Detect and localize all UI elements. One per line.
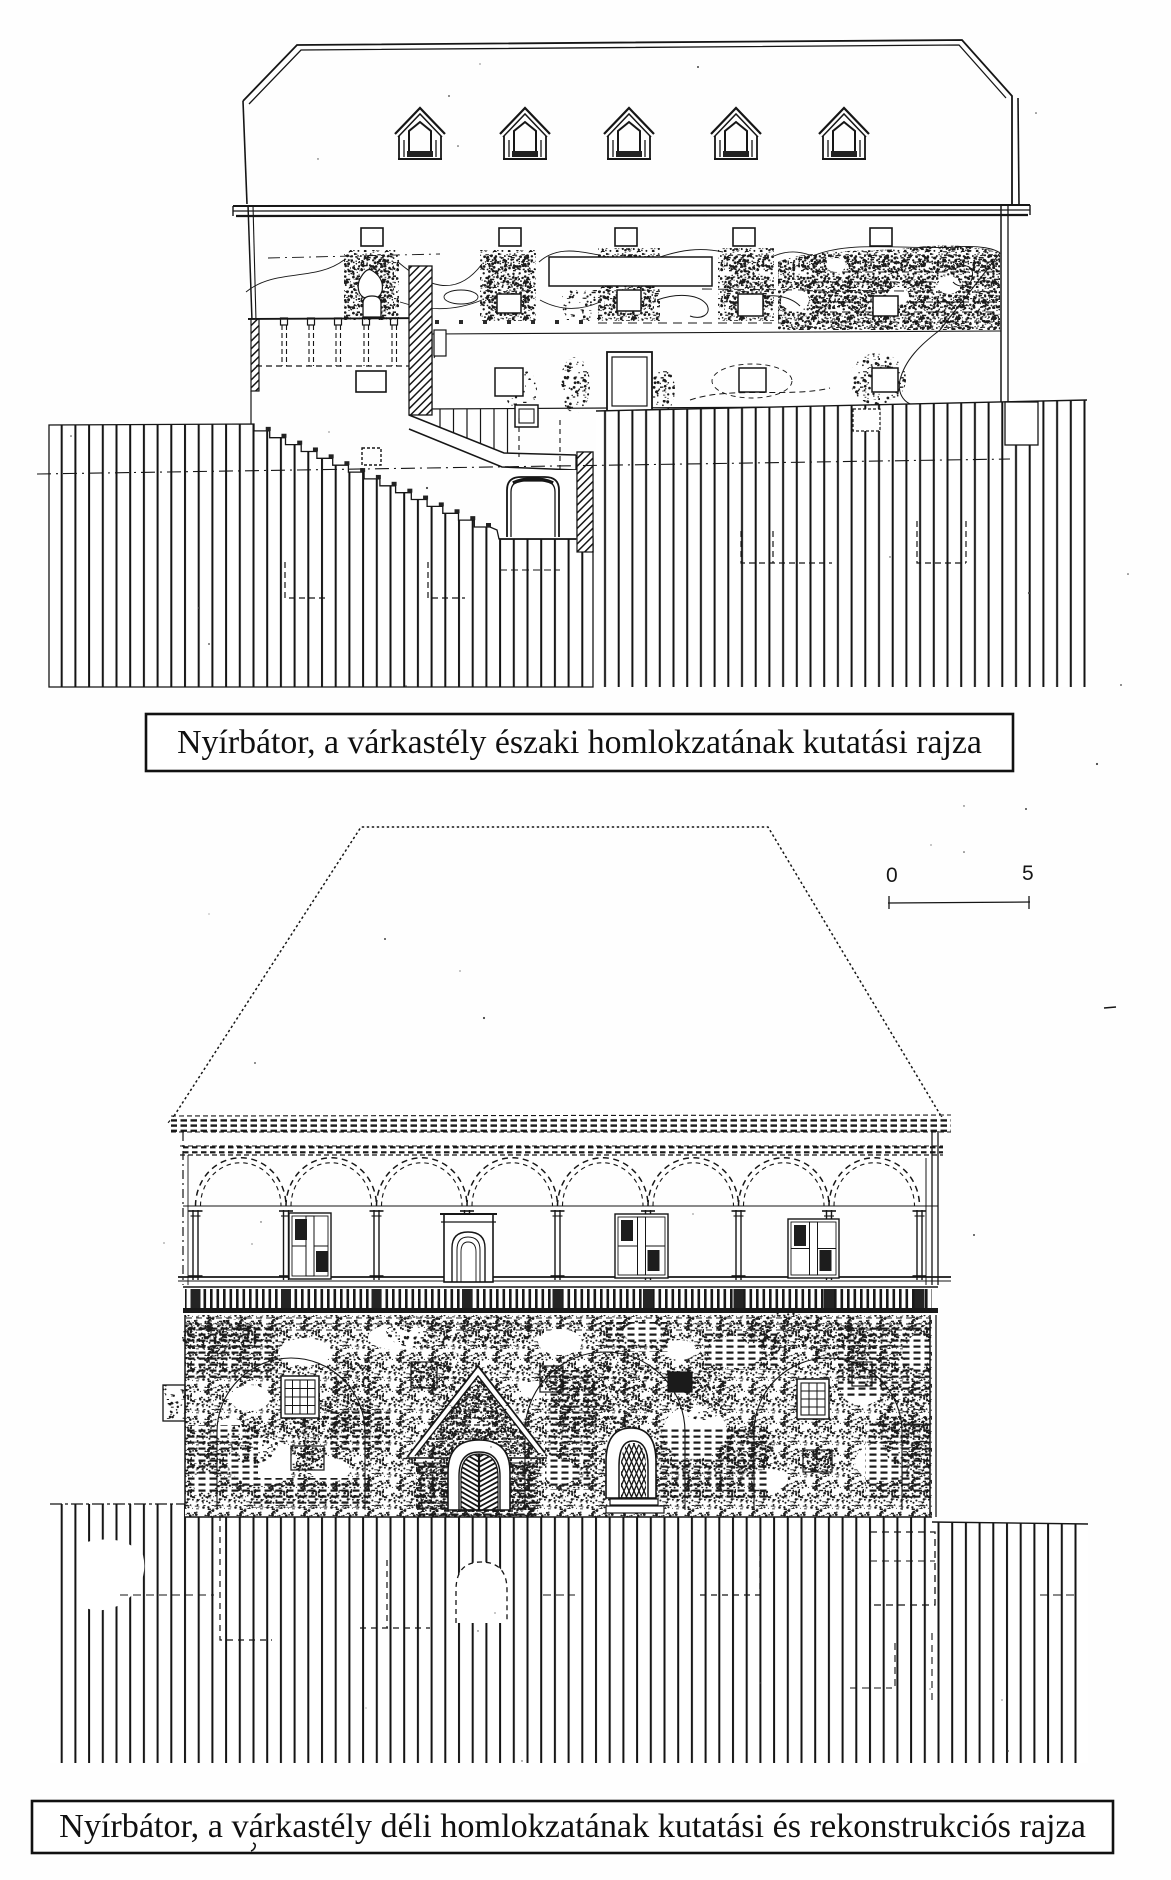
svg-text:5: 5 (1022, 862, 1034, 885)
svg-text:0: 0 (886, 864, 898, 887)
